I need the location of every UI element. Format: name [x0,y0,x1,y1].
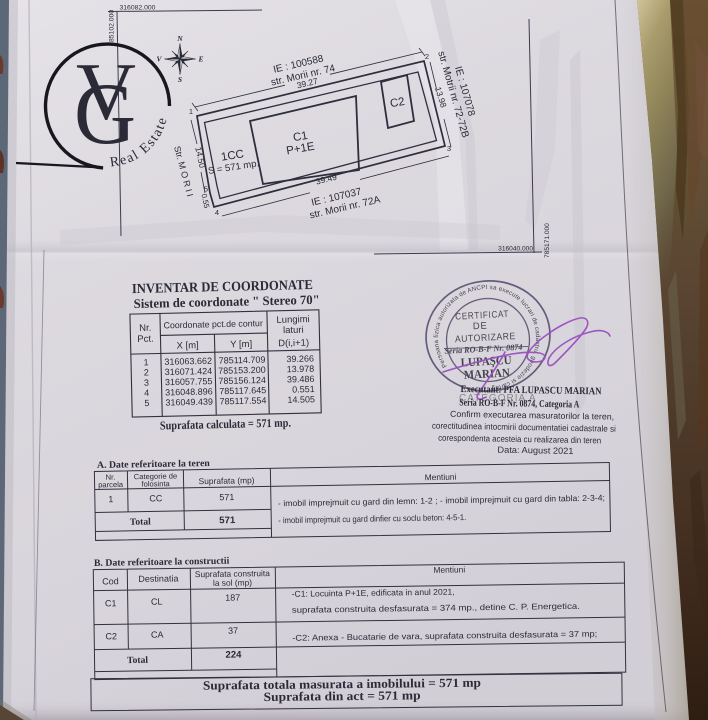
svg-text:laturi: laturi [283,325,304,336]
svg-text:4: 4 [215,208,219,217]
svg-text:785171.000: 785171.000 [544,223,551,258]
svg-text:G: G [74,66,136,163]
svg-text:C1: C1 [105,598,117,608]
svg-text:la sol (mp): la sol (mp) [213,577,252,588]
svg-text:X [m]: X [m] [176,340,198,352]
svg-text:785117.554: 785117.554 [219,395,266,406]
svg-text:2: 2 [144,367,149,377]
svg-text:Cod: Cod [102,576,119,586]
svg-text:4: 4 [144,388,149,398]
svg-text:5: 5 [204,185,208,194]
svg-text:E: E [198,55,204,64]
svg-text:Data: August 2021: Data: August 2021 [497,445,573,456]
svg-text:Total: Total [127,655,148,666]
svg-text:MARIAN: MARIAN [463,365,510,381]
svg-text:316049.439: 316049.439 [165,397,213,408]
svg-text:224: 224 [225,650,242,661]
svg-text:CL: CL [151,597,163,607]
svg-text:N: N [176,34,183,43]
svg-text:3: 3 [447,144,451,153]
svg-text:Y [m]: Y [m] [230,339,252,350]
svg-text:37: 37 [228,626,238,636]
svg-text:2: 2 [425,52,429,61]
svg-text:Mentiuni: Mentiuni [425,472,457,483]
svg-text:1: 1 [143,357,148,367]
svg-text:1: 1 [108,494,113,504]
svg-text:5: 5 [144,398,149,408]
svg-text:3: 3 [144,378,149,388]
svg-text:C2: C2 [105,631,117,641]
svg-text:85102.000: 85102.000 [109,10,116,42]
svg-text:CA: CA [151,630,164,640]
svg-text:Suprafata (mp): Suprafata (mp) [199,475,255,486]
svg-text:folosinta: folosinta [141,479,170,489]
svg-text:Mentiuni: Mentiuni [433,564,465,574]
svg-text:187: 187 [225,593,240,603]
svg-text:1: 1 [189,107,193,116]
svg-text:39.486: 39.486 [287,374,315,385]
svg-text:Destinatia: Destinatia [138,573,178,584]
svg-text:Suprafata din act = 571 mp: Suprafata din act = 571 mp [263,688,420,704]
svg-text:Nr.: Nr. [139,323,151,334]
svg-text:39.266: 39.266 [286,353,314,364]
svg-text:parcela: parcela [98,480,124,489]
svg-text:Suprafata calculata = 571 mp.: Suprafata calculata = 571 mp. [160,416,291,433]
svg-text:A. Date referitoare la teren: A. Date referitoare la teren [97,458,211,471]
svg-text:S: S [178,75,182,84]
svg-text:571: 571 [219,492,234,502]
svg-text:13.978: 13.978 [287,364,315,375]
svg-text:Pct.: Pct. [137,334,154,345]
svg-text:D(i,i+1): D(i,i+1) [278,338,309,350]
svg-text:316082.000: 316082.000 [120,5,156,12]
svg-text:0.551: 0.551 [292,384,315,395]
svg-text:14.505: 14.505 [287,394,315,405]
svg-text:Total: Total [130,516,151,527]
svg-text:316040.000: 316040.000 [498,246,533,253]
svg-text:DE: DE [473,321,488,333]
svg-text:C2: C2 [389,96,406,110]
svg-text:CC: CC [149,493,163,503]
svg-text:571: 571 [219,515,236,526]
